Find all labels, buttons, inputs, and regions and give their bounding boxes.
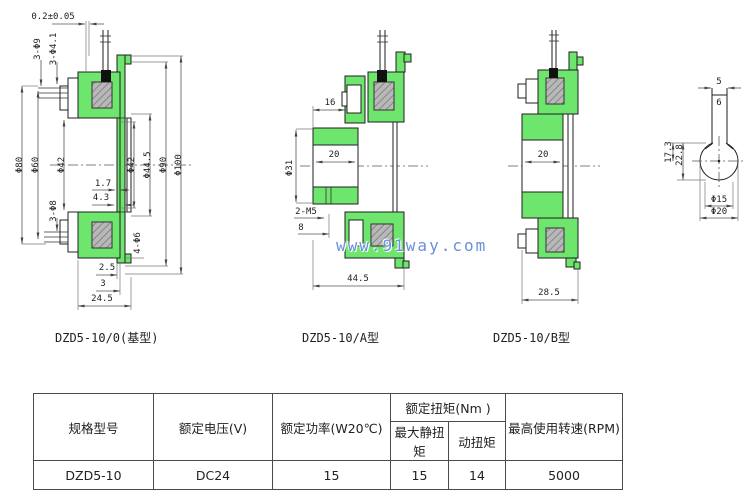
caption-type-a: DZD5-10/A型: [302, 329, 379, 346]
shaft-bore: [522, 140, 563, 192]
header-static-torque: 最大静扭矩: [391, 422, 449, 461]
dim-8: 8: [298, 223, 303, 233]
flange-tab-bottom: [403, 261, 409, 268]
caption-type-b: DZD5-10/B型: [493, 329, 570, 346]
cell-max-speed: 5000: [506, 461, 623, 490]
poppet-knob-top: [347, 85, 361, 113]
poppet-knob-top: [526, 79, 538, 103]
dim-phi44-5: Φ44.5: [143, 151, 153, 178]
view-type-b-section: 20 28.5: [508, 30, 600, 304]
dim-holes-3phi9: 3-Φ9: [33, 38, 43, 60]
spec-data-row: DZD5-10 DC24 15 15 14 5000: [34, 461, 623, 490]
hub-arm-top: [522, 114, 563, 140]
drawing-svg: Φ80 Φ60 Φ42 Φ42 Φ44.5 Φ90 Φ100: [0, 0, 754, 385]
dim-3: 3: [100, 279, 105, 289]
coil-bottom: [92, 222, 112, 248]
flange-tab-top: [125, 55, 131, 64]
dim-holes-4phi6: 4-Φ6: [133, 232, 143, 254]
dim-phi80: Φ80: [15, 157, 25, 173]
armature-top: [68, 78, 78, 118]
header-max-speed: 最高使用转速(RPM): [506, 394, 623, 461]
spec-table: 规格型号 额定电压(V) 额定功率(W20℃) 额定扭矩(Nm ) 最高使用转速…: [33, 393, 623, 490]
dim-1-7: 1.7: [95, 179, 111, 189]
dim-2-5: 2.5: [99, 263, 115, 273]
flange-tab-bottom: [574, 262, 580, 269]
poppet-step-top: [342, 92, 347, 106]
lead-terminal: [377, 30, 388, 82]
coil-bottom: [546, 228, 564, 252]
engineering-drawing-page: Φ80 Φ60 Φ42 Φ42 Φ44.5 Φ90 Φ100: [0, 0, 754, 499]
dim-phi42-right: Φ42: [127, 157, 137, 173]
dim-44-5: 44.5: [347, 274, 369, 284]
dim-holes-3phi4-1: 3-Φ4.1: [49, 33, 59, 66]
dim-2-m5: 2-M5: [295, 207, 317, 217]
dim-22-8: 22.8: [675, 144, 685, 166]
dim-24-5: 24.5: [91, 294, 113, 304]
base-dimensions: Φ80 Φ60 Φ42 Φ42 Φ44.5 Φ90 Φ100: [15, 12, 184, 310]
hub-arm-bottom: [313, 187, 358, 204]
caption-base-type: DZD5-10/0(基型): [55, 329, 158, 346]
lead-terminal: [100, 30, 111, 82]
flange-tab-bottom: [125, 254, 131, 263]
cell-model: DZD5-10: [34, 461, 154, 490]
coil-top: [546, 78, 564, 104]
dim-5: 5: [716, 77, 721, 87]
dim-20: 20: [538, 150, 549, 160]
rotor-rim: [568, 114, 573, 218]
hub-arm-bottom: [522, 192, 563, 218]
poppet-step-bottom: [518, 234, 526, 248]
hub-arm-top: [313, 128, 358, 145]
flange-wing-top: [577, 57, 583, 65]
armature-bottom: [68, 212, 78, 252]
header-power: 额定功率(W20℃): [273, 394, 391, 461]
type-b-body: [508, 30, 600, 269]
dim-phi15: Φ15: [711, 195, 727, 205]
dim-4-3: 4.3: [93, 193, 109, 203]
center-dot: [718, 160, 721, 163]
coil-top: [92, 82, 112, 108]
view-base-section: Φ80 Φ60 Φ42 Φ42 Φ44.5 Φ90 Φ100: [15, 12, 192, 310]
spec-header-row-1: 规格型号 额定电压(V) 额定功率(W20℃) 额定扭矩(Nm ) 最高使用转速…: [34, 394, 623, 422]
dim-16: 16: [325, 98, 336, 108]
dim-20: 20: [329, 150, 340, 160]
cell-static-torque: 15: [391, 461, 449, 490]
cell-dynamic-torque: 14: [449, 461, 506, 490]
dim-28-5: 28.5: [538, 288, 560, 298]
dim-6: 6: [716, 98, 721, 108]
rotor-rim: [393, 122, 397, 212]
lead-terminal: [549, 30, 559, 78]
poppet-step-top: [518, 84, 526, 98]
view-shaft-end: 5 6 17.3 22.8 Φ15 Φ20: [664, 77, 746, 221]
type-a-body: [300, 30, 428, 268]
base-body: [38, 30, 192, 263]
cell-voltage: DC24: [154, 461, 273, 490]
watermark-text: www.91way.com: [336, 236, 487, 255]
header-voltage: 额定电压(V): [154, 394, 273, 461]
dim-phi60: Φ60: [31, 157, 41, 173]
dim-phi20: Φ20: [711, 207, 727, 217]
flange-tab-top: [404, 54, 411, 62]
header-dynamic-torque: 动扭矩: [449, 422, 506, 461]
dim-holes-3phi8: 3-Φ8: [49, 200, 59, 222]
dim-phi100: Φ100: [174, 154, 184, 176]
poppet-knob-bottom: [526, 229, 538, 253]
cell-power: 15: [273, 461, 391, 490]
dim-phi31: Φ31: [285, 160, 295, 176]
dim-17-3: 17.3: [664, 141, 674, 163]
header-model: 规格型号: [34, 394, 154, 461]
header-torque-group: 额定扭矩(Nm ): [391, 394, 506, 422]
dim-phi90: Φ90: [159, 157, 169, 173]
flange-tab-top: [569, 52, 577, 70]
coil-top: [374, 82, 394, 110]
dim-phi42-left: Φ42: [57, 157, 67, 173]
dim-gap: 0.2±0.05: [31, 12, 74, 22]
